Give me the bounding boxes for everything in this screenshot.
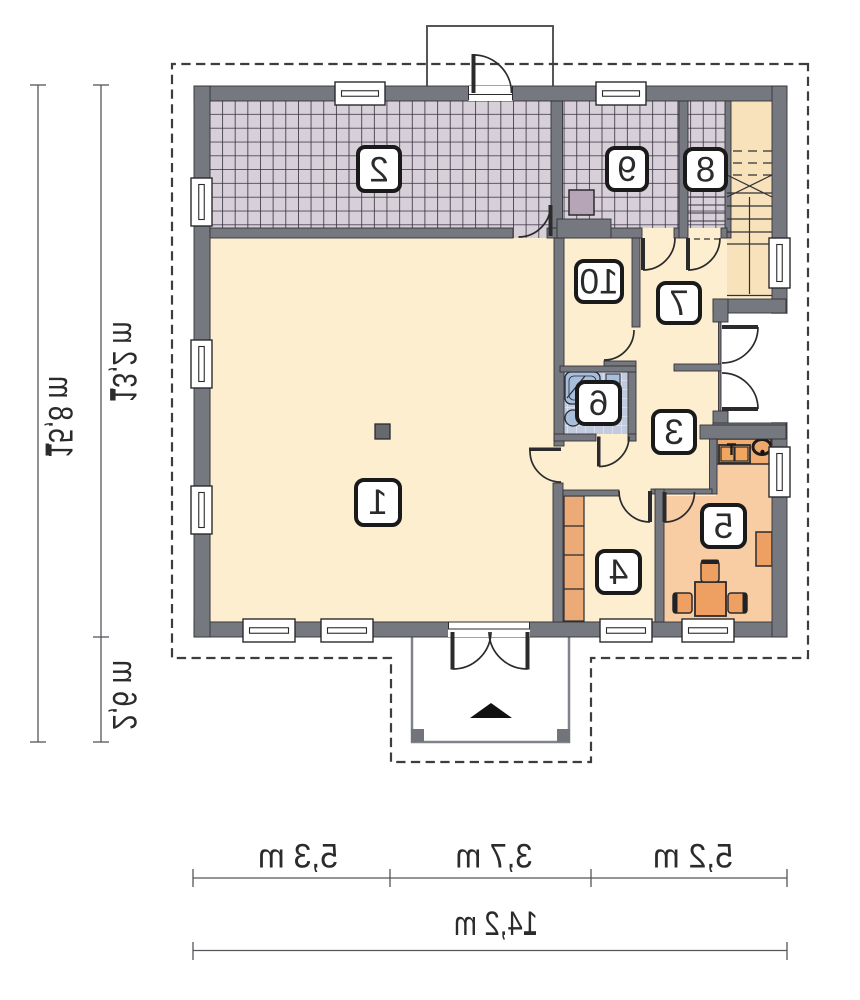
svg-text:10: 10 (580, 263, 619, 302)
svg-text:2,6 m: 2,6 m (105, 660, 143, 730)
svg-text:3: 3 (664, 413, 683, 452)
svg-text:2: 2 (369, 151, 388, 190)
svg-text:15,8 m: 15,8 m (41, 376, 79, 458)
svg-text:6: 6 (589, 384, 608, 423)
svg-text:3,7 m: 3,7 m (456, 838, 533, 876)
svg-text:4: 4 (609, 553, 628, 592)
svg-text:5: 5 (714, 507, 733, 546)
svg-text:14,2 m: 14,2 m (454, 905, 538, 943)
svg-text:9: 9 (617, 150, 636, 189)
svg-text:1: 1 (368, 483, 387, 522)
svg-text:7: 7 (669, 284, 688, 323)
svg-text:13,2 m: 13,2 m (105, 322, 143, 403)
svg-text:5,2 m: 5,2 m (653, 838, 733, 876)
svg-text:8: 8 (696, 151, 715, 190)
svg-text:5,3 m: 5,3 m (258, 838, 338, 876)
